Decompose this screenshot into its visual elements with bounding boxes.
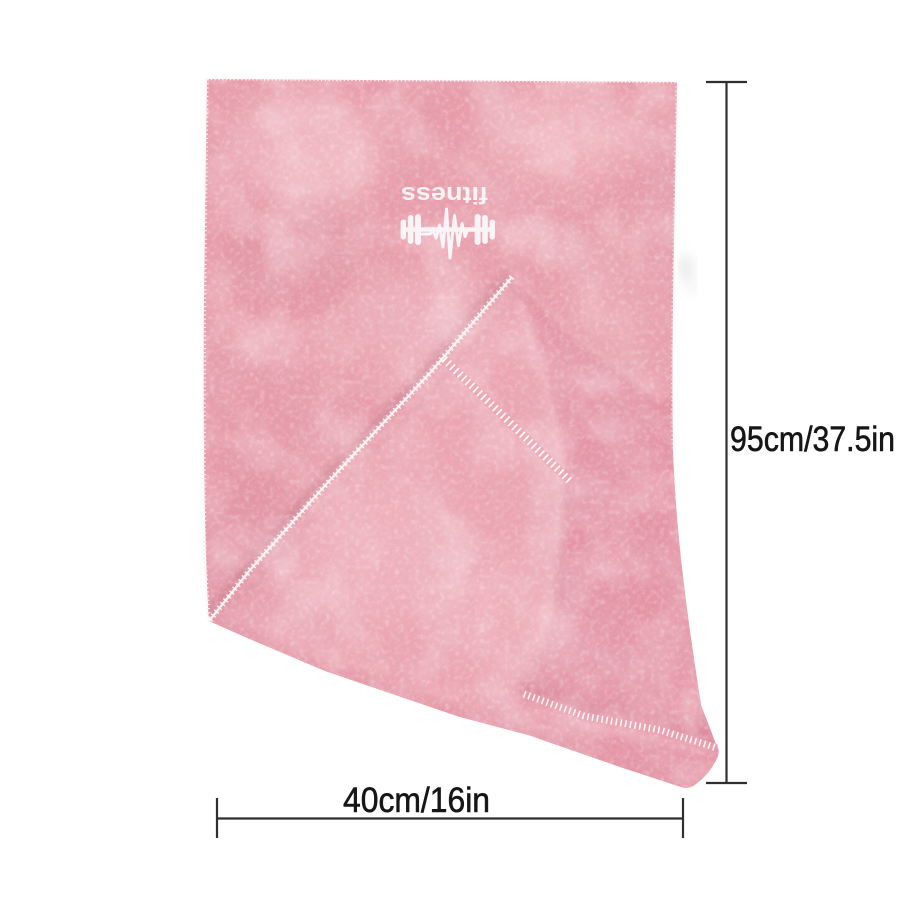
svg-text:95cm/37.5in: 95cm/37.5in	[730, 420, 895, 459]
svg-text:fitness: fitness	[401, 181, 488, 208]
svg-text:40cm/16in: 40cm/16in	[343, 781, 490, 820]
